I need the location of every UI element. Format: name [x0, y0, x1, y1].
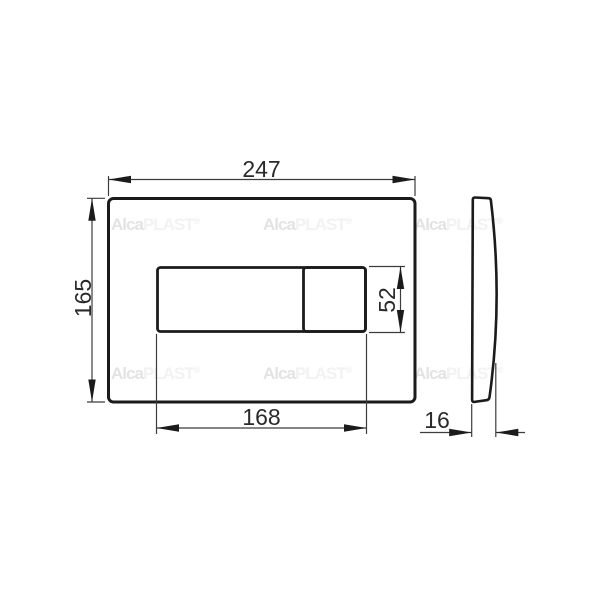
svg-text:AlcaPLAST®: AlcaPLAST®: [414, 364, 504, 383]
svg-text:AlcaPLAST®: AlcaPLAST®: [111, 364, 201, 383]
svg-text:247: 247: [242, 156, 280, 182]
svg-text:52: 52: [374, 287, 400, 313]
svg-text:168: 168: [242, 404, 280, 430]
svg-text:AlcaPLAST®: AlcaPLAST®: [263, 364, 353, 383]
svg-text:AlcaPLAST®: AlcaPLAST®: [263, 215, 353, 234]
svg-text:AlcaPLAST®: AlcaPLAST®: [414, 215, 504, 234]
svg-text:16: 16: [424, 407, 450, 433]
svg-text:AlcaPLAST®: AlcaPLAST®: [111, 215, 201, 234]
svg-text:165: 165: [70, 279, 96, 317]
